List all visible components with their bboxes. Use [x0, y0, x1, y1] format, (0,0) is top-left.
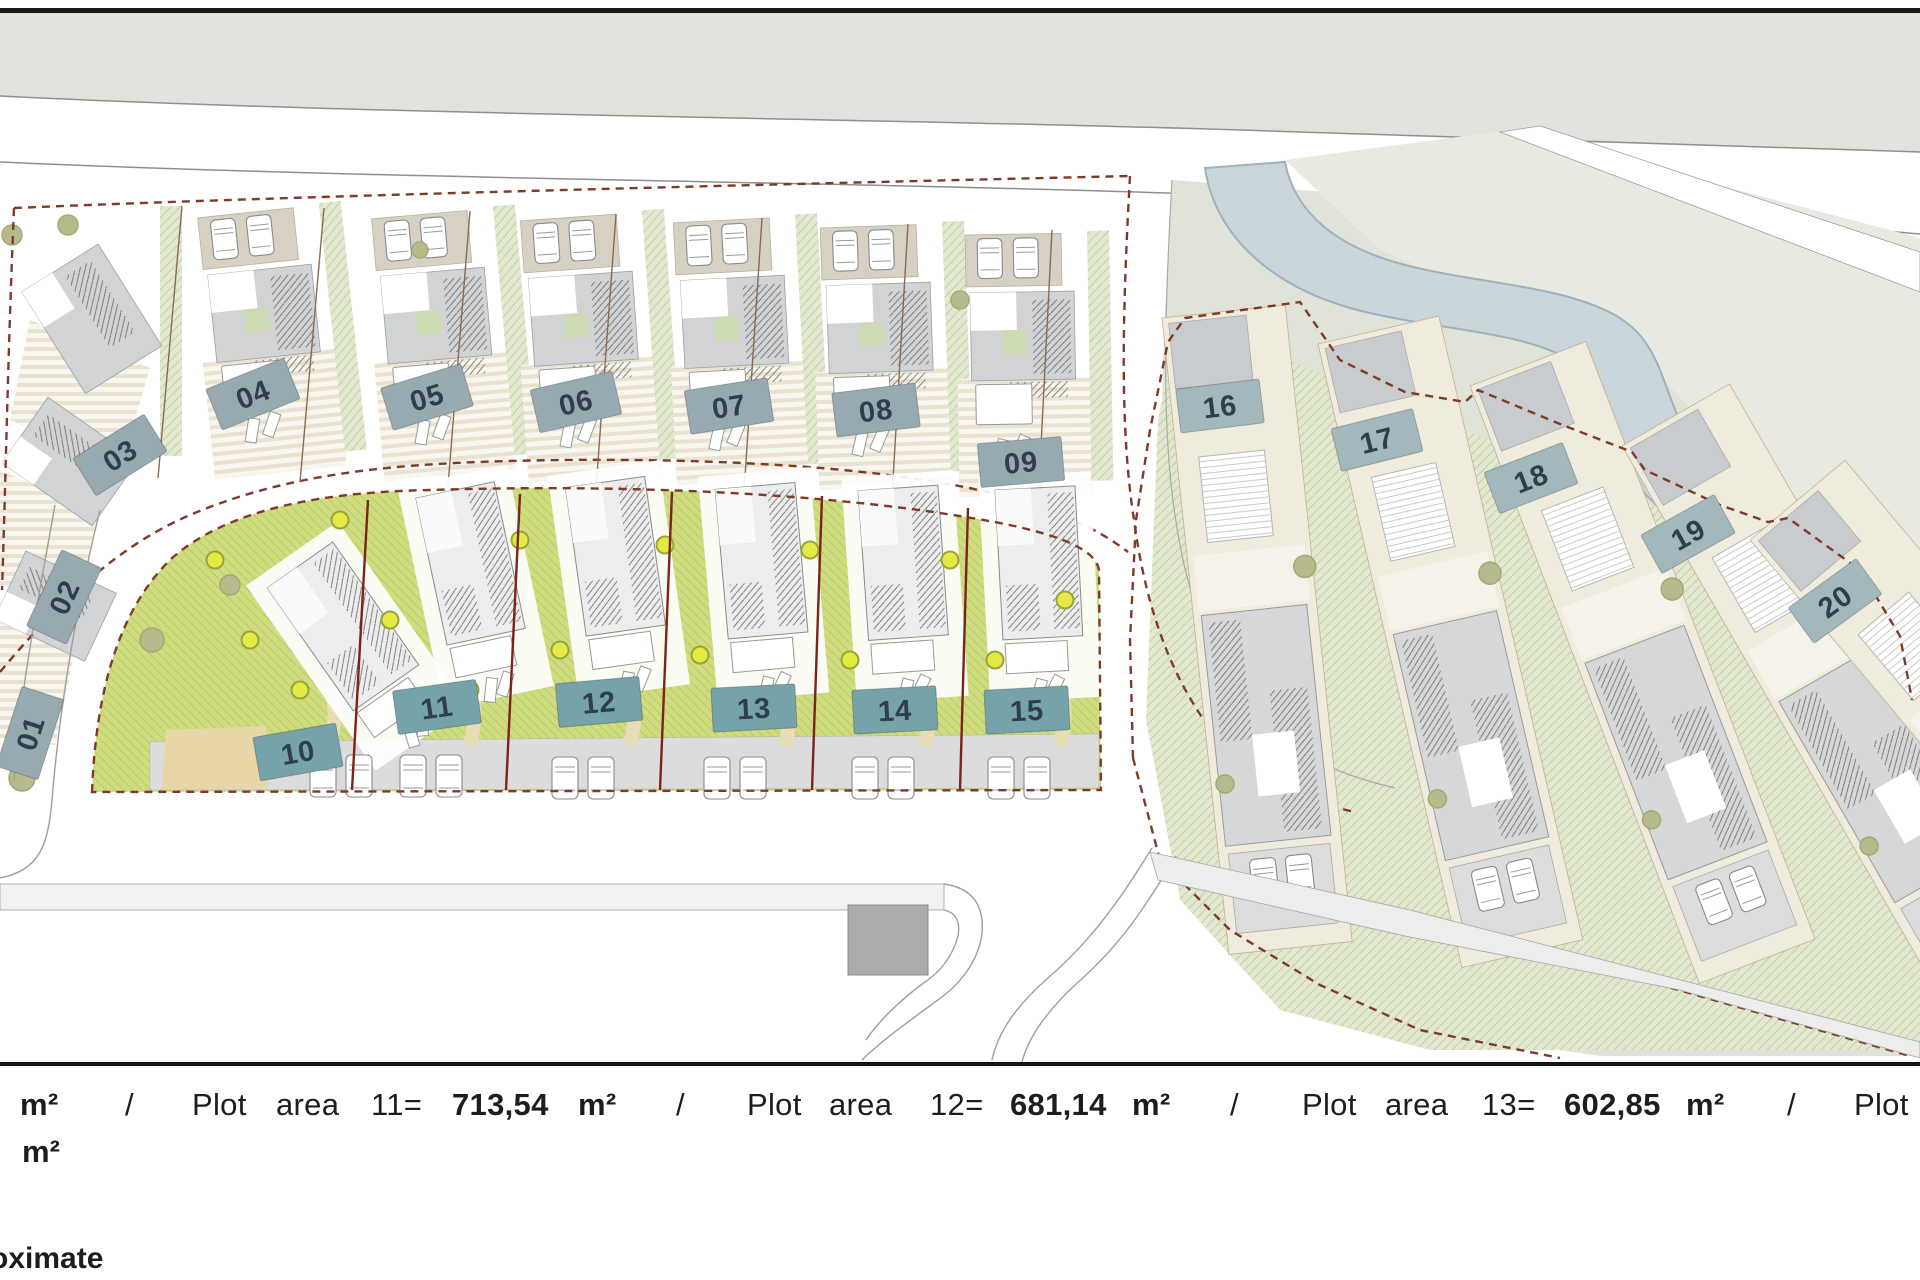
tree: [382, 612, 399, 629]
top-border-line: [0, 8, 1920, 13]
tree: [332, 512, 349, 529]
tree: [242, 632, 259, 649]
tree: [802, 542, 819, 559]
utility-building: [848, 905, 928, 975]
plot-number-text: 11: [419, 690, 456, 726]
plot-number-text: 08: [857, 393, 895, 429]
upper-plot: [188, 201, 369, 480]
top-verge-band: [0, 13, 1920, 152]
middle-plot-house: [698, 467, 830, 706]
middle-plot-house: [978, 471, 1102, 707]
middle-plot-house: [841, 470, 969, 707]
plot-label-15: 15: [984, 686, 1070, 734]
tree: [140, 628, 164, 652]
site-plan-page: 0102030405060708091011121314151617181920…: [0, 0, 1920, 1280]
tree: [207, 552, 224, 569]
tree: [942, 552, 959, 569]
plot-number-text: 16: [1201, 389, 1239, 425]
tree: [842, 652, 859, 669]
plot-number-text: 15: [1009, 695, 1045, 729]
curved-path: [992, 848, 1152, 1060]
upper-plot: [361, 204, 537, 480]
tree: [512, 532, 529, 549]
middle-plot-cluster: [92, 460, 1102, 799]
plot-label-09: 09: [977, 436, 1065, 487]
boundary-dashed: [14, 176, 1130, 208]
plot-label-14: 14: [852, 686, 938, 734]
upper-plot: [810, 221, 973, 490]
tree: [987, 652, 1004, 669]
plot-number-text: 07: [710, 389, 749, 426]
tree: [552, 642, 569, 659]
tree: [412, 242, 428, 258]
tree: [1057, 592, 1074, 609]
plot-number-text: 12: [581, 686, 618, 721]
tree: [58, 215, 78, 235]
bottom-road-band: [0, 884, 944, 910]
plot-number-text: 13: [736, 693, 772, 727]
tree: [692, 647, 709, 664]
plot-number-text: 09: [1003, 446, 1040, 481]
site-plan-drawing: 0102030405060708091011121314151617181920: [0, 0, 1920, 1280]
curved-path: [1022, 856, 1176, 1062]
plot-number-text: 10: [279, 735, 318, 772]
upper-plot: [510, 209, 682, 483]
tree: [951, 291, 969, 309]
tree: [292, 682, 309, 699]
tree: [220, 575, 240, 595]
sand-patch: [162, 726, 268, 790]
plot-number-text: 14: [877, 695, 913, 729]
plot-label-13: 13: [711, 684, 797, 732]
plot-label-12: 12: [555, 676, 643, 727]
